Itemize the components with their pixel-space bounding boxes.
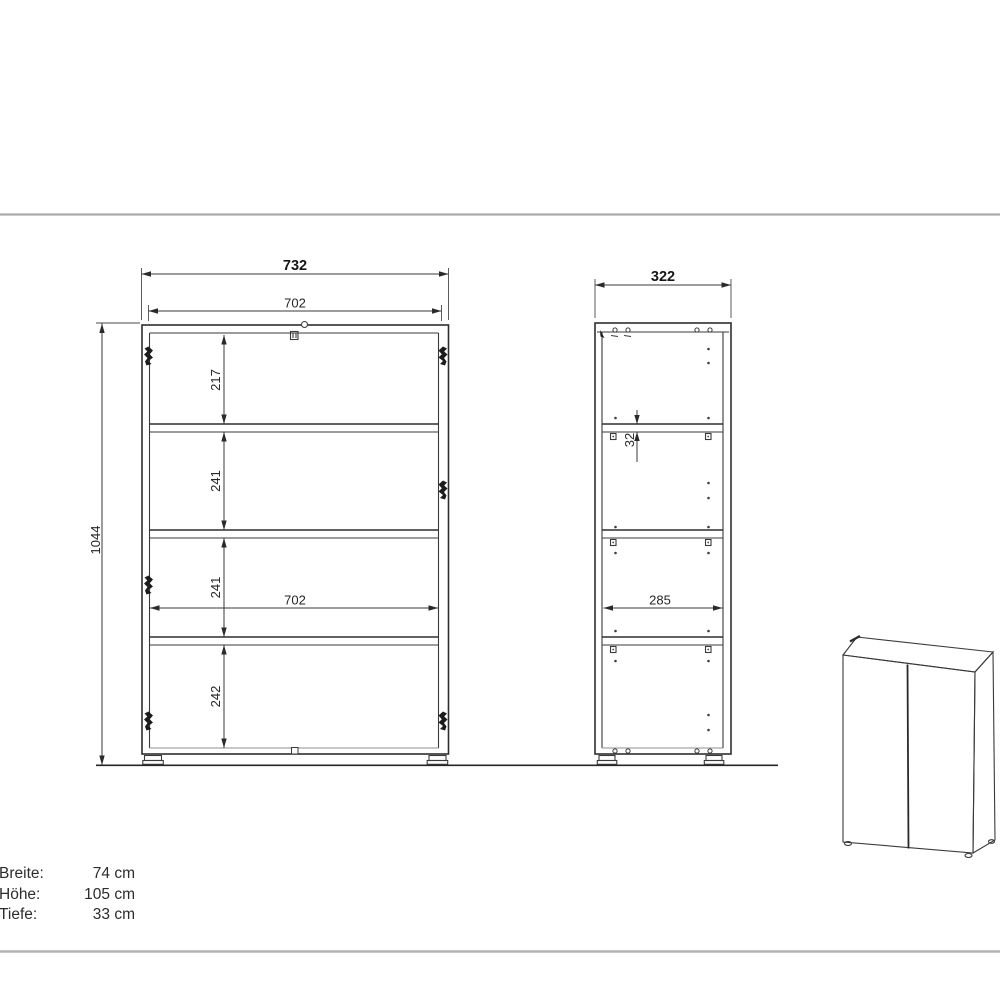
spec-label-tiefe: Tiefe:	[0, 905, 59, 926]
dim-shelf-thickness: 32	[622, 410, 640, 462]
side-feet	[597, 756, 724, 765]
dimensions-summary: Breite: 74 cm Höhe: 105 cm Tiefe: 33 cm	[0, 864, 135, 926]
side-view: 322 32 285	[595, 269, 731, 764]
iso-side-face	[973, 652, 995, 853]
dim-702-top-label: 702	[284, 296, 306, 311]
side-screws	[611, 328, 712, 753]
dim-241-lower-label: 241	[208, 577, 223, 599]
dim-242-label: 242	[208, 686, 223, 708]
dim-inner-depth: 285	[604, 593, 723, 611]
front-view: 732 702 1044 217	[88, 258, 449, 765]
dim-241-upper-label: 241	[208, 470, 223, 492]
dim-1044-label: 1044	[88, 526, 103, 555]
spec-row-hoehe: Höhe: 105 cm	[0, 885, 135, 906]
dim-section-3: 241	[208, 538, 227, 637]
iso-view	[843, 636, 995, 858]
iso-top-face	[843, 637, 993, 672]
spec-label-hoehe: Höhe:	[0, 885, 59, 906]
product-dimension-sheet: 732 702 1044 217	[0, 0, 1000, 1000]
dim-32-label: 32	[622, 433, 637, 447]
hinge-cup-icons	[611, 434, 712, 653]
dim-inner-width-mid: 702	[150, 593, 438, 611]
dim-322-label: 322	[651, 269, 675, 285]
dim-inner-width-top: 702	[149, 296, 442, 322]
bottom-cam-icon	[292, 748, 299, 755]
top-screw-icon	[302, 322, 308, 328]
dim-section-2: 241	[208, 432, 227, 530]
corner-mark-icon	[600, 330, 605, 338]
iso-back-edge	[850, 636, 860, 642]
spec-value-hoehe: 105 cm	[59, 885, 135, 906]
spec-label-breite: Breite:	[0, 864, 59, 885]
iso-door-gap	[908, 665, 909, 849]
dim-section-1: 217	[208, 335, 227, 424]
dim-total-height: 1044	[88, 323, 140, 765]
spec-row-breite: Breite: 74 cm	[0, 864, 135, 885]
dim-732-label: 732	[283, 258, 307, 274]
front-feet	[143, 756, 448, 765]
dim-217-label: 217	[208, 369, 223, 391]
dim-section-4: 242	[208, 645, 227, 748]
spec-value-breite: 74 cm	[59, 864, 135, 885]
pin-holes	[614, 348, 710, 732]
spec-value-tiefe: 33 cm	[59, 905, 135, 926]
dim-outer-depth: 322	[595, 269, 731, 318]
front-outline	[142, 325, 449, 754]
spec-row-tiefe: Tiefe: 33 cm	[0, 905, 135, 926]
dim-702-mid-label: 702	[284, 593, 306, 608]
dim-285-label: 285	[649, 593, 671, 608]
side-shelves	[602, 424, 723, 645]
front-shelves	[150, 424, 439, 645]
technical-drawing: 732 702 1044 217	[0, 0, 1000, 1000]
